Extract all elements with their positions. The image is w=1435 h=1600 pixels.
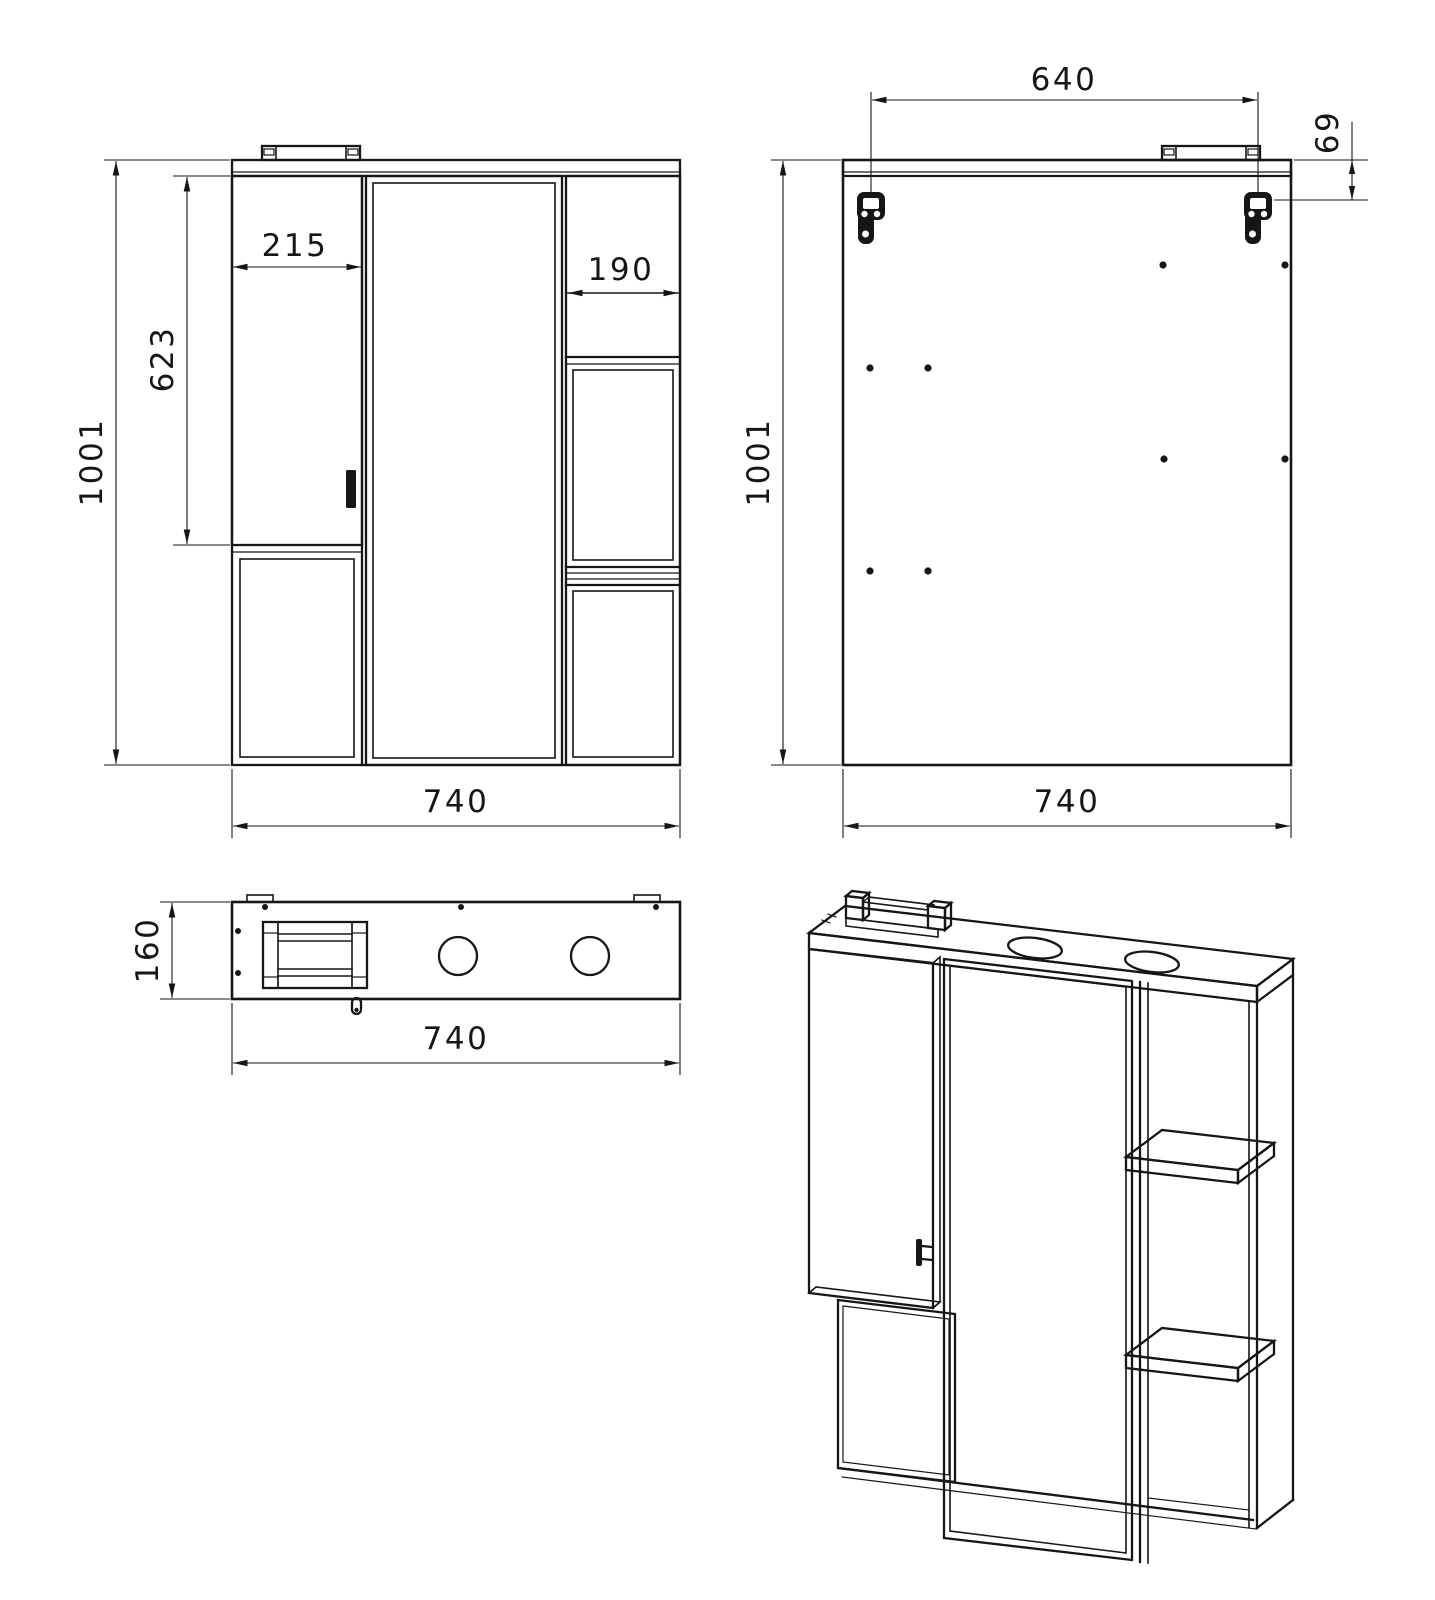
top-lamp-box [263, 922, 367, 988]
dim-back-width: 740 [1034, 784, 1101, 820]
dim-front-shelf-width: 190 [588, 252, 655, 288]
iso-top-shelf [809, 906, 1293, 1002]
front-shelf-niche-2 [573, 591, 673, 757]
top-dimensions: 160 740 [130, 902, 680, 1075]
front-view: 1001 623 215 190 740 [74, 146, 680, 838]
top-view: 160 740 [130, 895, 680, 1075]
front-lamp-box [262, 146, 360, 160]
dim-front-door-height: 623 [145, 326, 181, 393]
dim-top-width: 740 [423, 1021, 490, 1057]
isometric-view [809, 891, 1293, 1563]
iso-bottom-rail [838, 1468, 1293, 1529]
dim-front-door-width: 215 [262, 228, 329, 264]
iso-mirror [944, 959, 1132, 1560]
front-lower-panel [240, 559, 354, 757]
front-door-handle [346, 470, 356, 508]
dim-front-height: 1001 [74, 418, 110, 507]
back-panel-outline [843, 160, 1291, 765]
top-spot-hole-1 [439, 937, 477, 975]
back-lamp-box [1162, 146, 1260, 160]
front-shelf-niche-1 [573, 370, 673, 560]
dim-front-width: 740 [423, 784, 490, 820]
front-mirror-frame [366, 176, 562, 765]
top-door-handle [352, 998, 361, 1014]
back-screw-holes [866, 261, 1288, 574]
back-dimensions: 640 69 1001 740 [741, 62, 1368, 838]
top-spot-hole-2 [571, 937, 609, 975]
iso-shelf-column [1126, 975, 1293, 1563]
dim-back-height: 1001 [741, 418, 777, 507]
iso-lamp-box [846, 891, 951, 937]
dim-top-depth: 160 [130, 917, 166, 984]
hanger-bracket-right [1244, 192, 1272, 244]
iso-lower-compartment [838, 1300, 955, 1482]
dim-back-hanger-offset: 69 [1310, 110, 1346, 154]
drawing-canvas: 1001 623 215 190 740 [0, 0, 1435, 1600]
iso-door-handle [916, 1239, 922, 1266]
top-outline [232, 902, 680, 999]
back-view: 640 69 1001 740 [741, 62, 1368, 838]
hanger-bracket-left [857, 192, 885, 244]
technical-drawing-page: 1001 623 215 190 740 [0, 0, 1435, 1600]
front-mirror-glass [373, 183, 555, 758]
front-dimensions: 1001 623 215 190 740 [74, 160, 680, 838]
iso-door [809, 949, 940, 1308]
dim-back-hanger-spacing: 640 [1031, 62, 1098, 98]
